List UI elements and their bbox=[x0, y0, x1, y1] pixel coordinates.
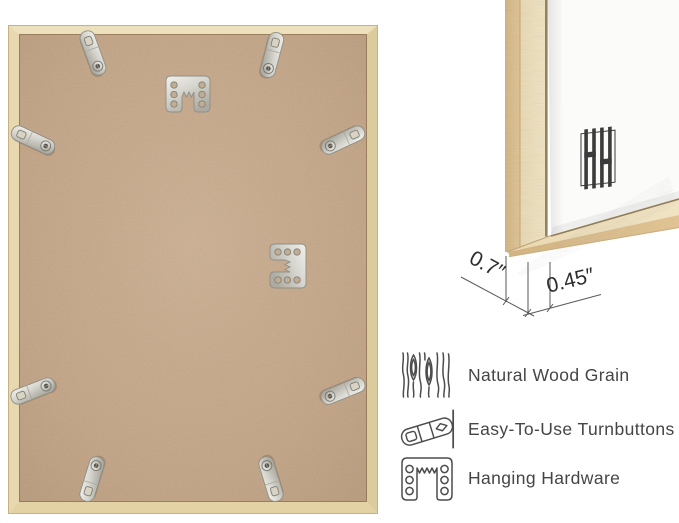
frame-corner-moulding bbox=[502, 0, 550, 258]
product-image: 0.7″ 0.45″ bbox=[0, 0, 679, 523]
frame-corner-detail: 0.7″ 0.45″ bbox=[420, 0, 679, 330]
feature-wood-grain: Natural Wood Grain bbox=[400, 352, 630, 398]
feature-turnbuttons: Easy-To-Use Turnbuttons bbox=[400, 406, 675, 452]
feature-label: Hanging Hardware bbox=[468, 468, 620, 489]
feature-label: Natural Wood Grain bbox=[468, 365, 630, 386]
frame-back-photo bbox=[8, 25, 378, 514]
feature-hanging-hardware: Hanging Hardware bbox=[400, 454, 620, 502]
mdf-backing-board bbox=[19, 34, 367, 502]
feature-label: Easy-To-Use Turnbuttons bbox=[468, 419, 675, 440]
hanging-hardware-icon bbox=[400, 454, 458, 502]
turnbutton-icon bbox=[400, 406, 458, 452]
wood-grain-icon bbox=[400, 352, 458, 398]
